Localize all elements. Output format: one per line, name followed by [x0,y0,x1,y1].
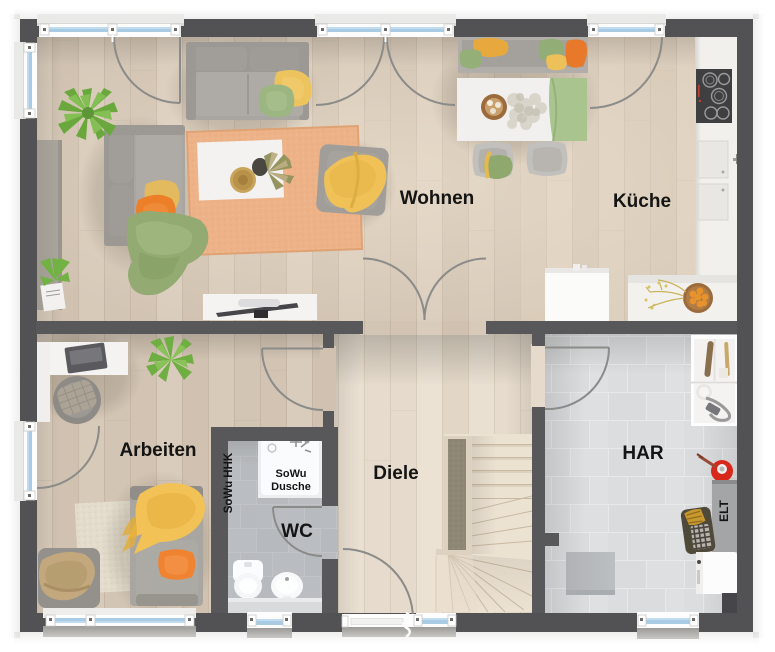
svg-text:Dusche: Dusche [271,481,311,493]
svg-text:ELT: ELT [717,499,731,521]
svg-text:SoWu HHK: SoWu HHK [223,452,235,513]
svg-text:Küche: Küche [613,191,671,212]
svg-text:WC: WC [281,521,313,542]
svg-text:HAR: HAR [622,443,663,464]
svg-text:Arbeiten: Arbeiten [119,440,196,461]
svg-text:Wohnen: Wohnen [400,188,475,209]
svg-text:SoWu: SoWu [276,468,307,480]
svg-text:Diele: Diele [373,463,418,484]
